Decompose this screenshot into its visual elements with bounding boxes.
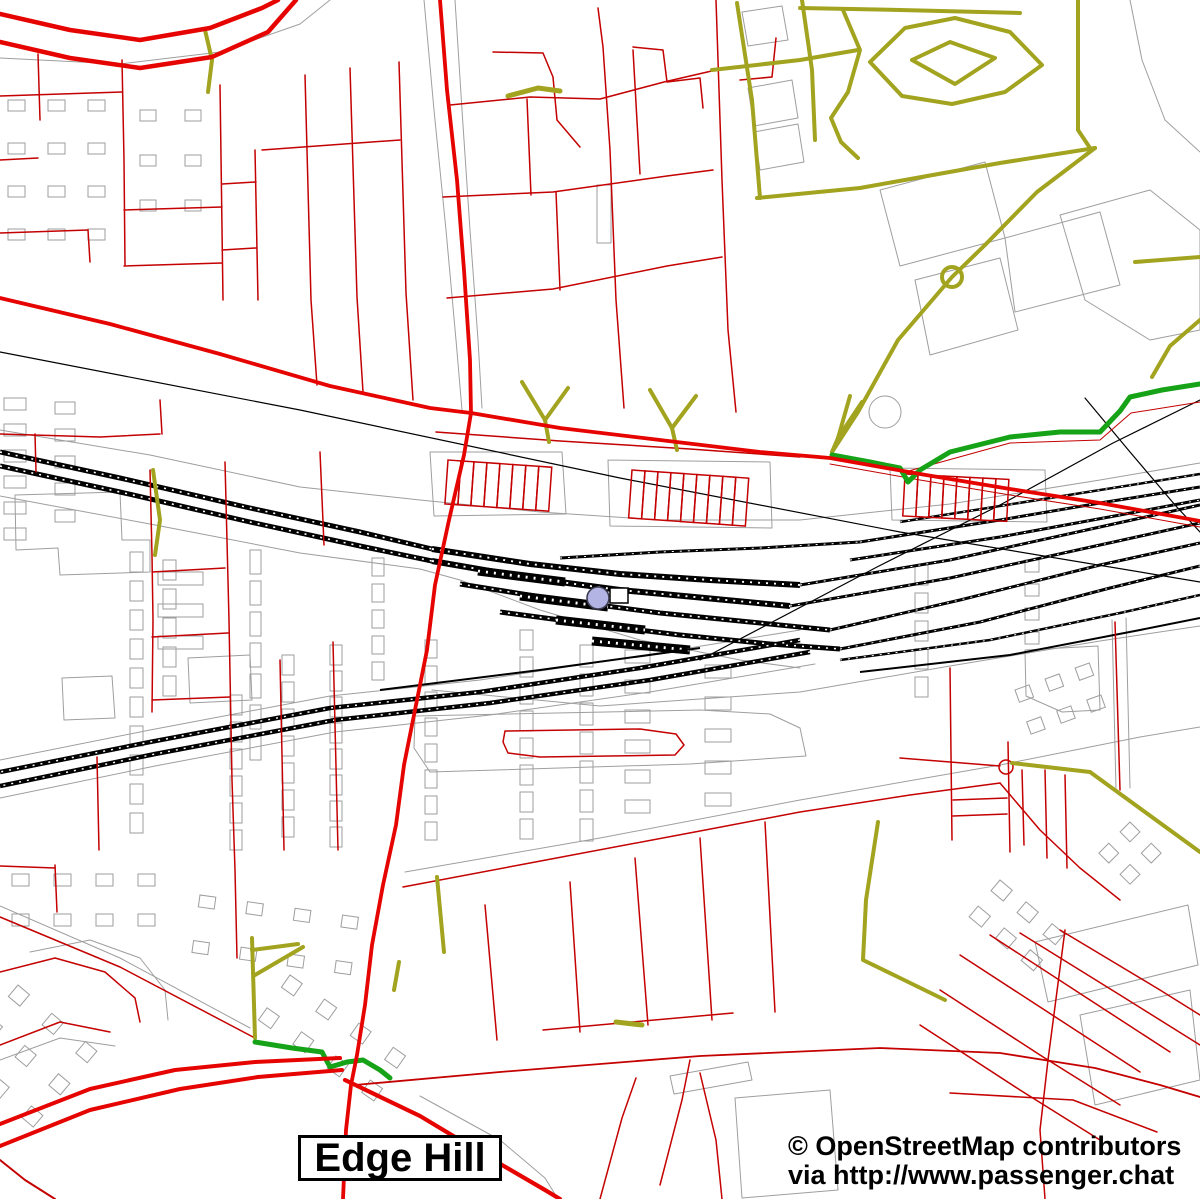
attribution-line-1: © OpenStreetMap contributors (788, 1132, 1181, 1161)
map-canvas[interactable] (0, 0, 1200, 1199)
map-viewport[interactable]: Edge Hill © OpenStreetMap contributors v… (0, 0, 1200, 1199)
place-label-text: Edge Hill (314, 1136, 485, 1181)
map-attribution: © OpenStreetMap contributors via http://… (788, 1132, 1181, 1190)
attribution-line-2[interactable]: via http://www.passenger.chat (788, 1161, 1181, 1190)
station-marker[interactable] (587, 587, 609, 609)
place-label-box: Edge Hill (298, 1135, 502, 1181)
